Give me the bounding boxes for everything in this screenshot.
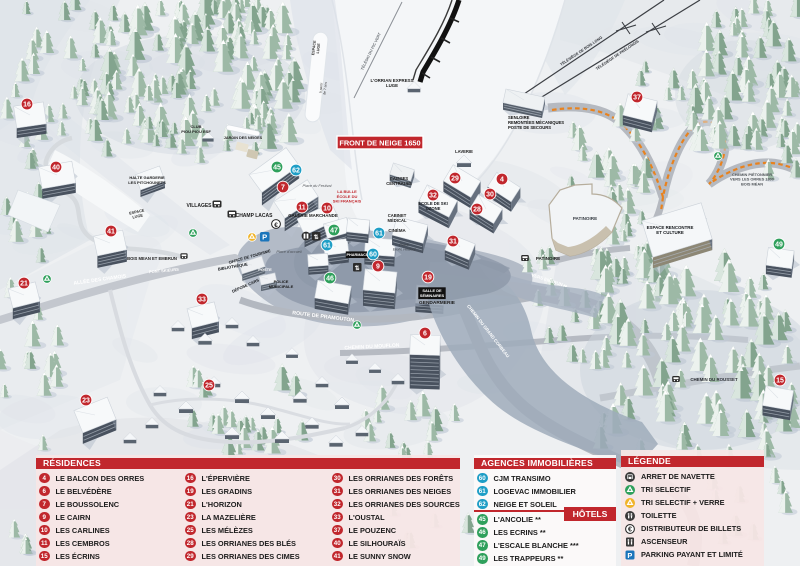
svg-text:PATINOIRE: PATINOIRE [536,256,560,261]
svg-text:PATINOIRE: PATINOIRE [573,216,597,221]
svg-text:BOIS MEAN ET EMBRUN: BOIS MEAN ET EMBRUN [127,256,177,261]
svg-text:16: 16 [23,101,31,108]
svg-text:47: 47 [330,227,338,234]
svg-text:⇅: ⇅ [314,234,319,241]
svg-text:⇅: ⇅ [355,265,360,272]
svg-text:46: 46 [326,275,334,282]
svg-text:21: 21 [20,280,28,287]
svg-text:P: P [627,550,632,559]
svg-text:HALTE GARDERIELES PITCHOUNETS: HALTE GARDERIELES PITCHOUNETS [128,175,166,185]
svg-text:CINÉMA: CINÉMA [388,228,406,233]
svg-text:61: 61 [375,230,383,237]
svg-text:SALLE DESÉMINAIRES: SALLE DESÉMINAIRES [420,288,445,298]
svg-text:Place d'accueil: Place d'accueil [276,250,301,254]
svg-text:GENDARMERIE: GENDARMERIE [419,300,456,306]
svg-text:P: P [262,233,267,242]
svg-text:19: 19 [424,274,432,281]
svg-text:LAVERIE: LAVERIE [455,149,473,154]
svg-text:10: 10 [323,205,331,212]
svg-text:CAISSESCENTRALES: CAISSESCENTRALES [386,176,412,186]
svg-text:29: 29 [451,175,459,182]
svg-text:11: 11 [298,204,306,211]
svg-text:VILLAGES: VILLAGES [186,203,212,209]
svg-text:€: € [628,524,632,533]
svg-text:FRONT DE NEIGE 1650: FRONT DE NEIGE 1650 [339,138,420,147]
svg-text:41: 41 [107,228,115,235]
svg-text:CABINETMÉDICAL: CABINETMÉDICAL [387,213,407,223]
svg-text:JARDIN DES NEIGES: JARDIN DES NEIGES [224,136,263,140]
svg-text:23: 23 [82,397,90,404]
svg-text:45: 45 [273,164,281,171]
svg-text:62: 62 [292,167,300,174]
svg-text:4: 4 [500,176,504,183]
svg-text:33: 33 [198,296,206,303]
svg-text:61: 61 [323,242,331,249]
svg-text:GALERIE MARCHANDE: GALERIE MARCHANDE [288,213,338,218]
svg-text:€: € [274,222,278,229]
svg-text:60: 60 [369,251,377,258]
svg-text:6: 6 [423,330,427,337]
svg-text:CHAMP LACAS: CHAMP LACAS [236,213,274,219]
svg-text:28: 28 [473,206,481,213]
svg-text:40: 40 [52,164,60,171]
svg-text:CHEMIN DU ROUSSET: CHEMIN DU ROUSSET [690,377,738,382]
svg-text:PHARMACIE: PHARMACIE [347,253,370,257]
svg-text:25: 25 [205,382,213,389]
svg-text:32: 32 [429,192,437,199]
svg-text:49: 49 [775,241,783,248]
svg-text:7: 7 [281,184,285,191]
svg-text:37: 37 [633,94,641,101]
svg-text:Place du Festival: Place du Festival [303,184,332,188]
svg-text:30: 30 [486,191,494,198]
svg-text:POSTE: POSTE [258,267,272,272]
svg-text:31: 31 [449,238,457,245]
svg-text:à partirde 7 ans: à partirde 7 ans [318,81,328,95]
svg-text:9: 9 [376,263,380,270]
svg-text:15: 15 [776,377,784,384]
